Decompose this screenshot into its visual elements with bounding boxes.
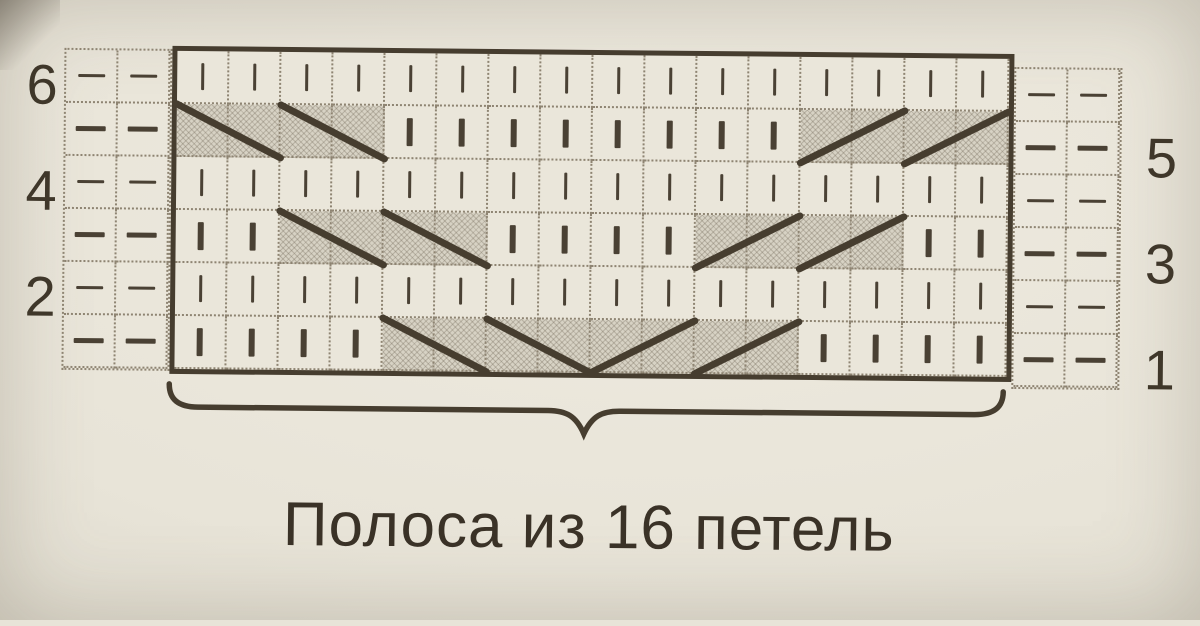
row-number-2: 2 xyxy=(8,262,73,331)
purl-stitch-symbol xyxy=(1028,93,1055,96)
purl-cell xyxy=(1067,122,1120,175)
decrease-diagonals-overlay xyxy=(174,51,1009,377)
purl-cell xyxy=(1068,69,1121,122)
row-number-1: 1 xyxy=(1127,336,1192,405)
diagonal-decrease-line xyxy=(590,320,695,374)
diagonal-decrease-line xyxy=(280,105,385,159)
sixteen-stitch-brace xyxy=(162,380,1011,454)
purl-cell xyxy=(1065,334,1118,387)
chart-tilt-wrapper: 654321 Полоса из 16 петель xyxy=(0,0,1200,626)
right-edge-stitch-columns xyxy=(1011,67,1122,390)
left-edge-stitch-columns xyxy=(61,48,172,371)
knitting-chart-photo: 654321 Полоса из 16 петель xyxy=(0,0,1200,620)
chart-caption: Полоса из 16 петель xyxy=(173,488,1006,567)
purl-cell xyxy=(1067,175,1120,228)
row-number-5: 5 xyxy=(1129,124,1194,193)
purl-stitch-symbol xyxy=(128,286,155,289)
purl-cell xyxy=(117,103,170,156)
purl-stitch-symbol xyxy=(127,232,157,237)
purl-stitch-symbol xyxy=(1076,358,1106,363)
purl-stitch-symbol xyxy=(1026,305,1053,308)
purl-cell xyxy=(1016,69,1069,122)
diagonal-decrease-line xyxy=(383,212,488,266)
diagonal-decrease-line xyxy=(486,319,591,373)
row-numbers: 654321 xyxy=(3,0,1200,6)
purl-stitch-symbol xyxy=(1078,146,1108,151)
purl-cell xyxy=(1066,281,1119,334)
purl-stitch-symbol xyxy=(76,126,106,131)
diagonal-decrease-line xyxy=(904,111,1009,165)
purl-stitch-symbol xyxy=(1027,199,1054,202)
pattern-repeat-box xyxy=(169,46,1014,382)
purl-stitch-symbol xyxy=(75,232,105,237)
purl-cell xyxy=(1015,122,1068,175)
row-number-6: 6 xyxy=(10,50,75,119)
purl-cell xyxy=(1013,334,1066,387)
purl-cell xyxy=(1066,228,1119,281)
diagonal-decrease-line xyxy=(695,215,800,269)
purl-stitch-symbol xyxy=(76,286,103,289)
diagonal-decrease-line xyxy=(694,321,799,375)
purl-stitch-symbol xyxy=(1080,94,1107,97)
diagonal-decrease-line xyxy=(279,211,384,265)
purl-stitch-symbol xyxy=(129,180,156,183)
purl-stitch-symbol xyxy=(130,74,157,77)
purl-stitch-symbol xyxy=(78,74,105,77)
purl-stitch-symbol xyxy=(77,180,104,183)
row-number-3: 3 xyxy=(1128,230,1193,299)
brace-path xyxy=(169,384,1003,438)
purl-stitch-symbol xyxy=(74,338,104,343)
purl-cell xyxy=(116,209,169,262)
diagonal-decrease-line xyxy=(800,110,905,164)
purl-stitch-symbol xyxy=(128,126,158,131)
purl-stitch-symbol xyxy=(1026,145,1056,150)
diagonal-decrease-line xyxy=(176,104,281,158)
purl-stitch-symbol xyxy=(126,338,156,343)
purl-stitch-symbol xyxy=(1024,357,1054,362)
purl-stitch-symbol xyxy=(1077,252,1107,257)
row-number-4: 4 xyxy=(9,156,74,225)
purl-cell xyxy=(1014,228,1067,281)
diagonal-decrease-line xyxy=(382,318,487,372)
purl-cell xyxy=(115,315,168,368)
diagonal-decrease-line xyxy=(799,216,904,270)
purl-stitch-symbol xyxy=(1079,200,1106,203)
purl-cell xyxy=(118,50,171,103)
purl-cell xyxy=(1014,281,1067,334)
purl-cell xyxy=(1015,175,1068,228)
purl-stitch-symbol xyxy=(1078,306,1105,309)
purl-cell xyxy=(117,156,170,209)
purl-stitch-symbol xyxy=(1025,251,1055,256)
purl-cell xyxy=(116,262,169,315)
